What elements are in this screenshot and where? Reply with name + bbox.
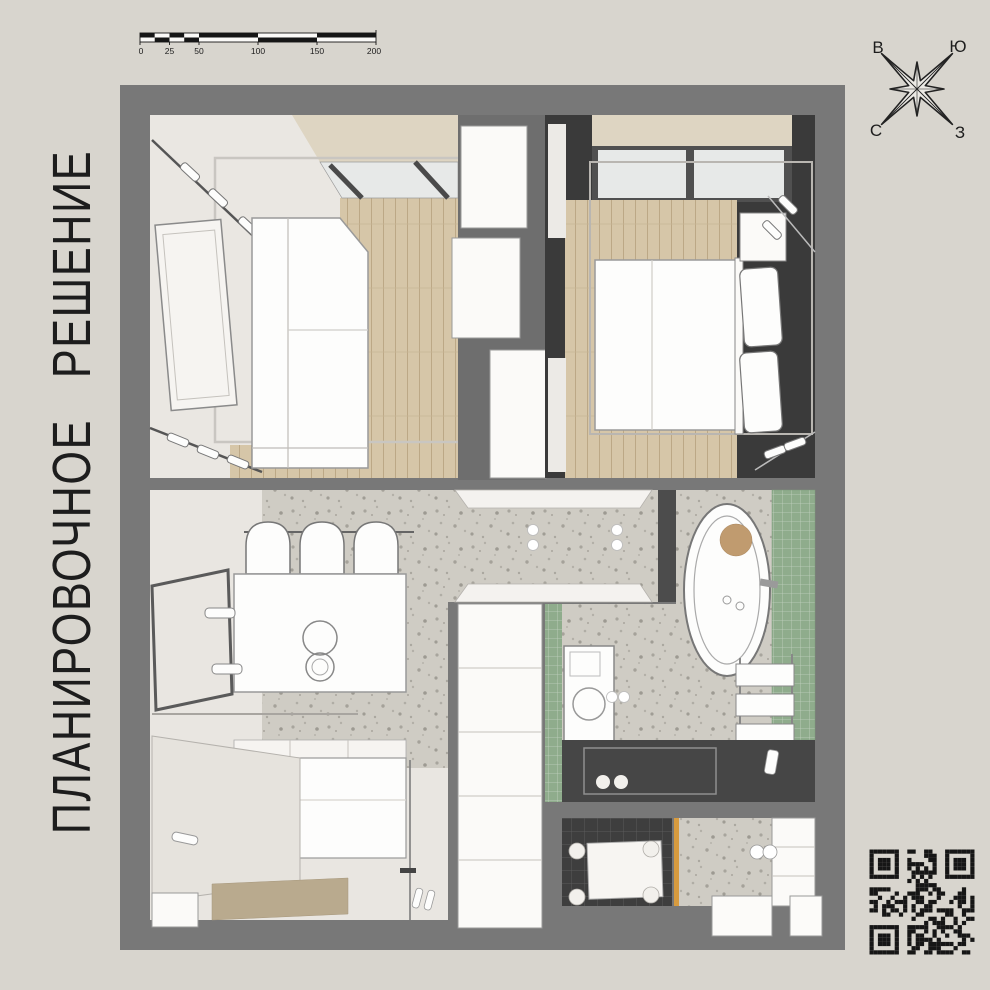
door-panel [790, 896, 822, 936]
scale-label: 100 [251, 46, 265, 56]
living-room [150, 115, 476, 478]
wardrobe-door [490, 350, 546, 478]
bathroom-doorframe [658, 490, 676, 602]
scale-label: 25 [165, 46, 175, 56]
bedroom-window [598, 150, 686, 198]
compass-label-south: Ю [949, 37, 966, 56]
wardrobe-column [452, 115, 546, 480]
bedroom [545, 115, 815, 478]
page-title: ПЛАНИРОВОЧНОЕ РЕШЕНИЕ [36, 148, 108, 836]
corridor [448, 490, 676, 602]
pillow [739, 351, 782, 433]
door-handle [400, 868, 416, 873]
towel [736, 694, 794, 716]
compass-label-west: З [955, 123, 965, 142]
scale-label: 150 [310, 46, 324, 56]
scale-bar-labels: 0 25 50 100 150 200 [139, 46, 382, 56]
ceiling-light [750, 845, 764, 859]
kitchen-island [234, 574, 406, 692]
scale-label: 200 [367, 46, 381, 56]
door-panel [152, 893, 198, 927]
ceiling-light [614, 775, 628, 789]
compass-star [882, 54, 953, 125]
tub-headrest [720, 524, 752, 556]
qr-code [866, 846, 978, 958]
hall-closet [455, 584, 652, 602]
ceiling-light [643, 841, 659, 857]
closet-panel [548, 124, 566, 238]
chair [300, 522, 344, 574]
living-room-window [320, 162, 458, 198]
chair [354, 522, 398, 574]
compass-label-north: С [870, 121, 882, 140]
chair [246, 522, 290, 574]
wall-light [212, 664, 242, 674]
wall-light [205, 608, 235, 618]
bedroom-ceiling-band [592, 115, 792, 148]
ceiling-light [528, 540, 539, 551]
closet-panel [548, 358, 566, 472]
shower-floor [562, 740, 815, 802]
entry-cabinet [772, 818, 815, 906]
ceiling-light [612, 525, 623, 536]
compass-rose: В Ю С З [852, 22, 984, 154]
storage-column [458, 604, 542, 928]
ceiling-light [612, 540, 623, 551]
ceiling-light [763, 845, 777, 859]
wardrobe-door [452, 238, 520, 338]
entry-terrazzo-floor [679, 818, 772, 906]
bedroom-window [694, 150, 784, 198]
wardrobe-door [461, 126, 527, 228]
sofa [252, 218, 368, 468]
pillow [739, 267, 782, 347]
ceiling-light [569, 843, 585, 859]
hall-closet [455, 490, 652, 508]
green-tile-wall [545, 604, 562, 802]
compass-label-east: В [872, 38, 883, 57]
ceiling-light [643, 887, 659, 903]
living-room-ceiling-band [292, 115, 458, 162]
ceiling-light [596, 775, 610, 789]
bench [152, 736, 300, 902]
ceiling-light [619, 692, 630, 703]
floor-mat [212, 878, 348, 920]
ceiling-light [569, 889, 585, 905]
scale-bar-segments [140, 30, 376, 45]
scale-label: 50 [194, 46, 204, 56]
scale-label: 0 [139, 46, 144, 56]
towel [736, 664, 794, 686]
kitchen [150, 490, 448, 927]
ceiling-light [528, 525, 539, 536]
bed [595, 258, 783, 434]
threshold-strip [674, 818, 679, 906]
scale-bar: 0 25 50 100 150 200 [136, 30, 386, 60]
floor-plan [0, 0, 990, 990]
ceiling-light [607, 692, 618, 703]
door-panel [712, 896, 772, 936]
